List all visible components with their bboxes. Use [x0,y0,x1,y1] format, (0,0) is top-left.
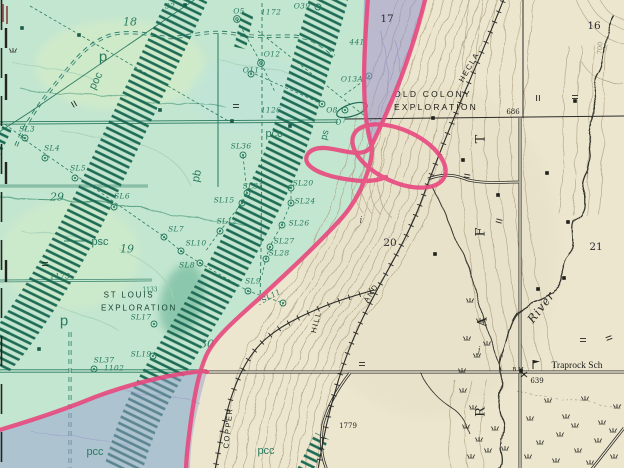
topographic-map-scan: pppocpccpccpccpscpbpsSL3SL4SL5SL6SL7SL8S… [0,0,624,468]
map-canvas [0,0,624,468]
